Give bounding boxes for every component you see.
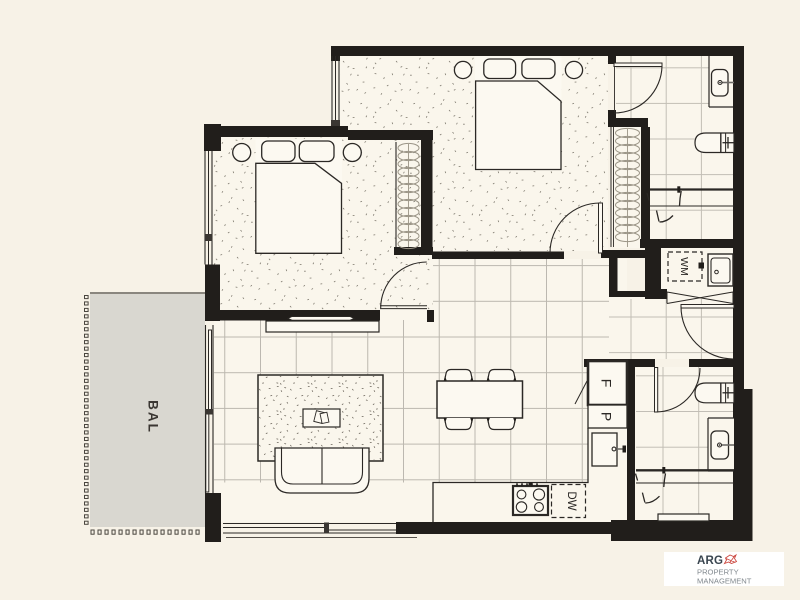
svg-text:ARG: ARG [697,555,723,567]
svg-text:BAL: BAL [145,400,160,434]
svg-text:P: P [598,412,614,421]
svg-text:F: F [598,379,614,388]
svg-text:WM: WM [678,257,690,276]
svg-text:MANAGEMENT: MANAGEMENT [697,577,752,586]
svg-text:PROPERTY: PROPERTY [697,568,739,577]
svg-text:DW: DW [565,491,577,510]
